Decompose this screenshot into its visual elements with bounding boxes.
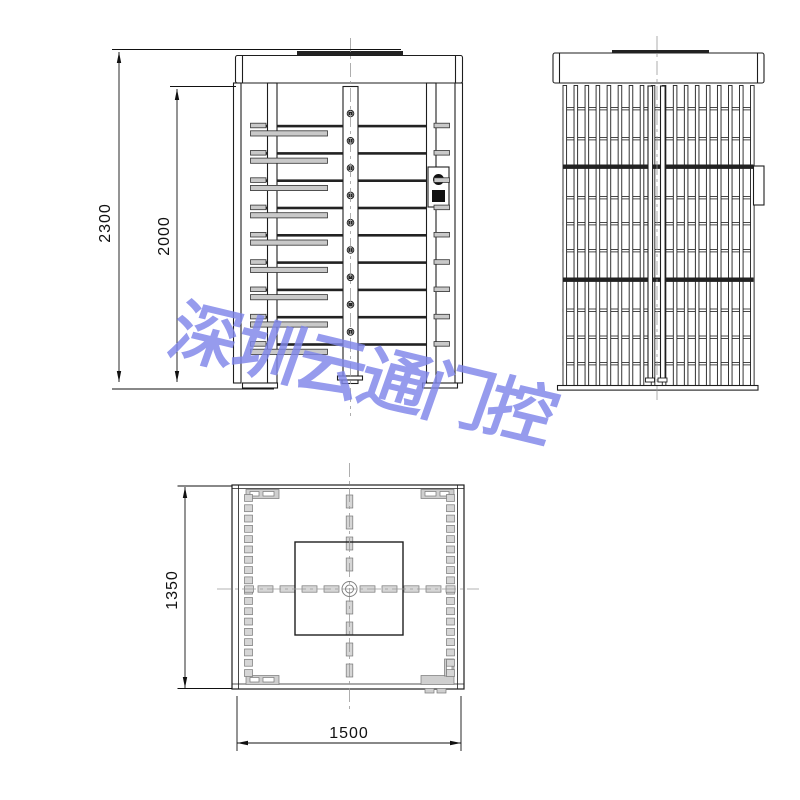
cage-bar	[574, 86, 578, 386]
arm-tab-left	[251, 178, 267, 183]
plan-bar-segment-right	[447, 536, 455, 543]
arrow-icon	[175, 89, 179, 100]
cage-bar	[629, 86, 633, 386]
side-thin-rails	[563, 108, 754, 365]
cage-bar	[717, 86, 721, 386]
plan-bar-segment-right	[447, 659, 455, 666]
arm-tab-right	[434, 178, 450, 183]
arm-tab-right	[434, 314, 450, 319]
plan-bar-segment-left	[245, 598, 253, 605]
dim-label-housing-height: 2000	[156, 216, 174, 256]
arm-tab-right	[434, 123, 450, 128]
front-top-cap	[236, 56, 463, 84]
arm-tab-left	[251, 260, 267, 265]
cage-rail	[563, 363, 754, 365]
plan-bar-segment-left	[245, 670, 253, 677]
cage-bar	[607, 86, 611, 386]
cage-rail	[563, 138, 754, 140]
plan-bar-segment-left	[245, 505, 253, 512]
dim-label-plan-width: 1500	[329, 725, 369, 743]
cage-main-rail	[563, 278, 754, 282]
cage-rail	[563, 223, 754, 225]
plan-bar-segment-right	[447, 567, 455, 574]
cage-bar	[563, 86, 567, 386]
cage-rail	[563, 309, 754, 311]
cage-rail	[563, 250, 754, 252]
plan-bar-segment-right	[447, 495, 455, 502]
dim-label-total-height: 2300	[97, 203, 115, 243]
arrow-icon	[117, 52, 121, 63]
cage-bar	[673, 86, 677, 386]
plan-bar-segment-right	[447, 618, 455, 625]
cage-rail	[563, 108, 754, 110]
plan-bar-segment-right	[447, 670, 455, 677]
arm-tab-right	[434, 151, 450, 156]
arrow-icon	[450, 741, 461, 745]
side-door-foot-left	[646, 378, 655, 382]
arrow-icon	[117, 371, 121, 382]
technical-drawing-canvas: 2300 2000 1350 1500 深圳云通门控	[0, 0, 800, 800]
plan-bar-segment-left	[245, 495, 253, 502]
side-door-bar-left	[648, 86, 653, 380]
cage-bar	[640, 86, 644, 386]
cage-bar	[706, 86, 710, 386]
plan-bar-segment-right	[447, 628, 455, 635]
rotor-arm	[251, 131, 328, 136]
plan-bar-segment-left	[245, 567, 253, 574]
plan-bar-segment-left	[245, 659, 253, 666]
arm-tab-right	[434, 232, 450, 237]
plan-bar-segment-left	[245, 577, 253, 584]
side-door-bar-right	[661, 86, 666, 380]
rotor-arm	[251, 213, 328, 218]
card-reader-icon	[432, 190, 445, 202]
plan-bar-segment-right	[447, 608, 455, 615]
cage-bar	[751, 86, 755, 386]
cage-rail	[563, 336, 754, 338]
side-cage-bars	[563, 86, 754, 386]
plan-bar-segment-right	[447, 598, 455, 605]
side-base-bar	[558, 386, 759, 391]
side-lock-box	[754, 166, 765, 205]
plan-bar-segment-left	[245, 556, 253, 563]
arm-tab-right	[434, 287, 450, 292]
plan-bar-segment-left	[245, 525, 253, 532]
plan-bar-segment-right	[447, 546, 455, 553]
plan-bar-segment-right	[447, 515, 455, 522]
plan-bar-segment-left	[245, 628, 253, 635]
dim-label-plan-depth: 1350	[164, 570, 182, 610]
plan-bar-segment-right	[447, 649, 455, 656]
plan-bar-segment-left	[245, 546, 253, 553]
arrow-icon	[183, 677, 187, 688]
arm-tab-left	[251, 232, 267, 237]
plan-bar-segment-left	[245, 608, 253, 615]
cage-bar	[596, 86, 600, 386]
cage-bar	[585, 86, 589, 386]
rotor-arm	[251, 185, 328, 190]
arm-tab-left	[251, 205, 267, 210]
front-post-right-outer	[455, 83, 463, 383]
cage-bar	[618, 86, 622, 386]
cage-rail	[563, 197, 754, 199]
cage-bar	[739, 86, 743, 386]
arm-tab-right	[434, 205, 450, 210]
cage-main-rail	[563, 165, 754, 169]
cage-bar	[695, 86, 699, 386]
rotor-arm	[251, 240, 328, 245]
cage-bar	[684, 86, 688, 386]
front-cap-ridge	[297, 51, 403, 55]
arrow-icon	[237, 741, 248, 745]
plan-bar-segment-left	[245, 618, 253, 625]
plan-bar-segment-right	[447, 505, 455, 512]
arm-tab-left	[251, 151, 267, 156]
side-elevation-view	[553, 36, 764, 402]
plan-bar-segment-right	[447, 556, 455, 563]
plan-view	[217, 463, 479, 711]
plan-bar-segment-left	[245, 515, 253, 522]
arm-tab-left	[251, 123, 267, 128]
plan-bar-segment-right	[447, 525, 455, 532]
plan-bar-segment-left	[245, 536, 253, 543]
side-cap-ridge	[612, 50, 709, 54]
side-top-cap	[553, 53, 764, 83]
plan-bar-segment-left	[245, 639, 253, 646]
arm-tab-right	[434, 260, 450, 265]
plan-bar-segment-right	[447, 639, 455, 646]
plan-bar-segment-left	[245, 649, 253, 656]
hinge-pin-icon	[349, 303, 352, 306]
plan-bar-segment-right	[447, 577, 455, 584]
arrow-icon	[183, 487, 187, 498]
cage-bar	[728, 86, 732, 386]
rotor-arm	[251, 267, 328, 272]
rotor-arm	[251, 158, 328, 163]
side-door-foot-right	[658, 378, 667, 382]
